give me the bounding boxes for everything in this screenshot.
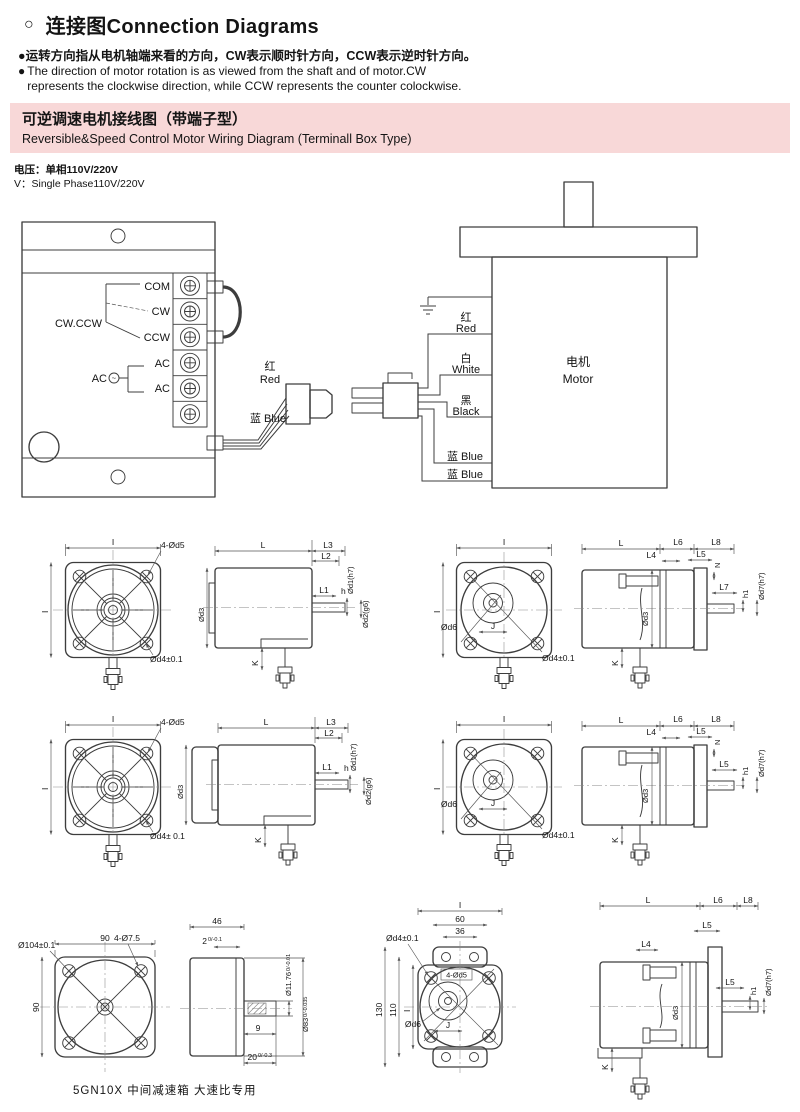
dim-label: Ød4± 0.1 bbox=[150, 831, 185, 841]
dim-label: L6 bbox=[673, 537, 683, 547]
dim-label: h1 bbox=[741, 590, 750, 598]
dim-label: L bbox=[646, 895, 651, 905]
dim-label: L5 bbox=[696, 726, 706, 736]
dim-label: 90 bbox=[100, 933, 110, 943]
dim-label: 4-Ød5 bbox=[446, 971, 467, 980]
dim-label: L8 bbox=[711, 537, 721, 547]
dim-label: 60 bbox=[455, 914, 465, 924]
dim-label: L8 bbox=[711, 714, 721, 724]
dim-label: 2 bbox=[202, 936, 207, 946]
diagrams-canvas: COM CW CCW AC AC CW.CCW ~ AC 红 bbox=[0, 0, 800, 1112]
dim-label: L6 bbox=[713, 895, 723, 905]
dim-label: I bbox=[40, 611, 50, 613]
dim-label: Ø830/-0.035 bbox=[301, 997, 310, 1032]
dim-label: Ød3 bbox=[641, 789, 650, 803]
dim-label: 20 bbox=[248, 1052, 258, 1062]
dim-label: Ød4±0.1 bbox=[542, 653, 575, 663]
dim-label: 46 bbox=[212, 916, 222, 926]
dim-label: 9 bbox=[256, 1023, 261, 1033]
motor-wire2-en: White bbox=[452, 364, 480, 376]
dim-label: I bbox=[40, 788, 50, 790]
dim-label: L7 bbox=[719, 582, 729, 592]
motor-wire4-label: 蓝 Blue bbox=[447, 450, 483, 463]
wire-label-red-cn: 红 bbox=[265, 360, 276, 373]
dim-label: I bbox=[432, 788, 442, 790]
dim-label: Ød1(h7) bbox=[346, 566, 355, 594]
dim-label: N bbox=[713, 563, 722, 568]
dim-label: Ød7(h7) bbox=[757, 572, 766, 600]
dim-label: L bbox=[619, 538, 624, 548]
dim-tolerance: 0/-0.1 bbox=[208, 937, 222, 943]
dim-label: Ød3 bbox=[176, 785, 185, 799]
drawing-row3-left: 90 90 4-Ø7.5 Ø104±0.1 46 2 0/-0.1 Ø11.76… bbox=[18, 916, 310, 1072]
motor-label-en: Motor bbox=[563, 372, 594, 386]
dim-label: Ød3 bbox=[197, 608, 206, 622]
dim-label: Ø104±0.1 bbox=[18, 940, 56, 950]
dim-label: Ød1(h7) bbox=[349, 743, 358, 771]
dim-label: L bbox=[261, 540, 266, 550]
dim-label: I bbox=[459, 900, 461, 910]
dim-label: 110 bbox=[388, 1003, 398, 1017]
dim-label: L5 bbox=[725, 977, 735, 987]
dim-tolerance: 0/-0.3 bbox=[258, 1053, 272, 1059]
dim-label: 4-Ød5 bbox=[161, 717, 185, 727]
ground-icon bbox=[420, 297, 492, 314]
dim-label: Ød7(h7) bbox=[757, 749, 766, 777]
dim-label: K bbox=[250, 660, 260, 666]
dim-label: I bbox=[503, 537, 505, 547]
dim-label: L5 bbox=[719, 759, 729, 769]
motor-wire5-label: 蓝 Blue bbox=[447, 468, 483, 481]
dim-label: L8 bbox=[743, 895, 753, 905]
motor-drawing: 电机 Motor 红 Red 白 White 黑 bbox=[352, 182, 697, 488]
drawing-row2-left: I I 4-Ød5 Ød4± 0.1 L L3 L2 L1 h Ød1(h7) … bbox=[40, 714, 373, 867]
motor-label-cn: 电机 bbox=[566, 355, 590, 369]
terminal-label-cw: CW bbox=[152, 306, 171, 318]
dim-label: L2 bbox=[324, 728, 334, 738]
dim-label: Ød4±0.1 bbox=[386, 933, 419, 943]
drawing-row3-right: 4-Ød5 Ød6 J Ød4±0.1 I 60 36 130 110 I bbox=[374, 895, 773, 1099]
dim-label: L bbox=[619, 715, 624, 725]
ac-source-label: AC bbox=[92, 373, 107, 385]
dim-label: Ød4±0.1 bbox=[542, 830, 575, 840]
dim-label: L2 bbox=[321, 551, 331, 561]
dim-label: I bbox=[112, 714, 114, 724]
dim-label: Ød2(g6) bbox=[364, 777, 373, 805]
drawing-row1-left: I I 4-Ød5 Ød4±0.1 L L3 L2 L1 h Ød1(h7) Ø… bbox=[40, 537, 370, 690]
terminal-label-ac1: AC bbox=[155, 358, 170, 370]
dim-label: J bbox=[446, 1020, 450, 1030]
dim-label: h1 bbox=[749, 987, 758, 995]
dim-label: K bbox=[610, 660, 620, 666]
ac-symbol: ~ bbox=[112, 374, 117, 383]
dim-label: I bbox=[432, 611, 442, 613]
dim-label: K bbox=[600, 1064, 610, 1070]
jumper-wire bbox=[223, 287, 240, 337]
dim-label: J bbox=[491, 798, 495, 808]
dim-label: L6 bbox=[673, 714, 683, 724]
dim-label: Ød4±0.1 bbox=[150, 654, 183, 664]
terminal-label-com: COM bbox=[144, 281, 170, 293]
selector-label: CW.CCW bbox=[55, 318, 103, 330]
dim-label: L3 bbox=[326, 717, 336, 727]
dim-label: 130 bbox=[374, 1003, 384, 1017]
dim-label: I bbox=[112, 537, 114, 547]
wire-label-red-en: Red bbox=[260, 374, 280, 386]
drawing-row1-right: I I Ød6 J Ød4±0.1 L L6 L8 L4 L5 N L7 h1 bbox=[432, 537, 766, 689]
dim-label: L1 bbox=[322, 762, 332, 772]
dim-label: L5 bbox=[696, 549, 706, 559]
motor-wire1-en: Red bbox=[456, 323, 476, 335]
motor-wire2-cn: 白 bbox=[461, 351, 472, 365]
dim-label: K bbox=[253, 837, 263, 843]
dim-label: L1 bbox=[319, 585, 329, 595]
dim-label: Ø11.760/-0.01 bbox=[284, 954, 293, 996]
dim-label: L3 bbox=[323, 540, 333, 550]
dim-label: I bbox=[402, 1010, 412, 1012]
dim-label: I bbox=[503, 714, 505, 724]
dim-label: J bbox=[491, 621, 495, 631]
dim-label: Ød7(h7) bbox=[764, 968, 773, 996]
dim-label: N bbox=[713, 740, 722, 745]
dim-label: Ød3 bbox=[671, 1006, 680, 1020]
dim-label: Ød6 bbox=[441, 799, 457, 809]
dim-label: L bbox=[264, 717, 269, 727]
motor-wire3-en: Black bbox=[453, 406, 480, 418]
dim-label: L4 bbox=[647, 727, 657, 737]
terminal-label-ac2: AC bbox=[155, 383, 170, 395]
drawing-row2-right: I I Ød6 J Ød4±0.1 L L6 L8 L4 L5 N L5 h1 bbox=[432, 714, 766, 866]
dim-label: K bbox=[610, 837, 620, 843]
dim-label: 90 bbox=[31, 1002, 41, 1012]
dim-label: L5 bbox=[702, 920, 712, 930]
dim-label: L4 bbox=[647, 550, 657, 560]
dim-label: Ød3 bbox=[641, 612, 650, 626]
dim-label: 4-Ø7.5 bbox=[114, 933, 140, 943]
dim-label: 4-Ød5 bbox=[161, 540, 185, 550]
wire-label-blue: 蓝 Blue bbox=[250, 412, 286, 425]
speed-controller-drawing: COM CW CCW AC AC CW.CCW ~ AC 红 bbox=[22, 222, 332, 497]
dim-label: h1 bbox=[741, 767, 750, 775]
terminal-label-ccw: CCW bbox=[144, 332, 171, 344]
dim-label: 36 bbox=[455, 926, 465, 936]
catalog-page: ○ 连接图Connection Diagrams ●运转方向指从电机轴端来看的方… bbox=[0, 0, 800, 1112]
wiring-diagram: COM CW CCW AC AC CW.CCW ~ AC 红 bbox=[22, 182, 697, 497]
dim-label: Ød6 bbox=[441, 622, 457, 632]
dim-label: Ød2(g6) bbox=[361, 600, 370, 628]
dim-label: L4 bbox=[641, 939, 651, 949]
